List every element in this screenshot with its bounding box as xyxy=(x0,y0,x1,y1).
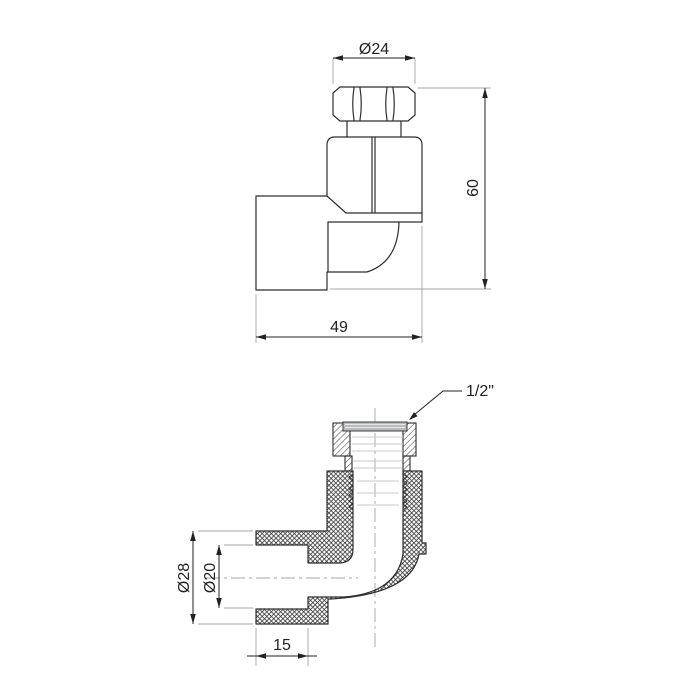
dim-id-arrow-bottom xyxy=(216,598,222,608)
thread-size-callout: 1/2" xyxy=(409,383,494,420)
dim-width-label: 49 xyxy=(330,319,348,336)
bore-thread-lines xyxy=(352,437,403,505)
dim-id-label: Ø20 xyxy=(202,563,219,593)
dim-nut-arrow-left xyxy=(333,55,343,61)
elbow-lower-outline xyxy=(328,222,399,272)
hex-nut-facet-lines xyxy=(353,88,395,120)
flange-step xyxy=(328,213,422,222)
thread-band-fill xyxy=(343,422,407,431)
thread-band xyxy=(343,422,407,431)
neck-section-left xyxy=(345,456,352,471)
dim-width-arrow-right xyxy=(412,334,422,340)
hex-nut-outline xyxy=(333,87,415,121)
technical-drawing: Ø24 60 49 xyxy=(0,0,700,700)
dim-height-arrow-top xyxy=(482,88,488,98)
dim-nut-label: Ø24 xyxy=(359,41,389,58)
thread-leader-line xyxy=(414,391,462,415)
dim-od-arrow-top xyxy=(190,531,196,541)
dim-nut-diameter: Ø24 xyxy=(333,41,415,84)
neck-section-right xyxy=(403,456,410,471)
dim-socket-inner-diameter: Ø20 xyxy=(202,545,253,608)
neck-lines xyxy=(347,121,401,137)
section-view: 1/2" Ø28 Ø20 15 xyxy=(176,383,494,666)
dim-id-arrow-top xyxy=(216,545,222,555)
drawing-canvas: Ø24 60 49 xyxy=(0,0,700,700)
dim-od-label: Ø28 xyxy=(176,563,193,593)
top-view: Ø24 60 49 xyxy=(256,41,491,343)
dim-socket-depth: 15 xyxy=(247,628,317,666)
dim-depth-arrow-right xyxy=(298,653,308,659)
thread-size-label: 1/2" xyxy=(466,383,494,400)
dim-od-arrow-bottom xyxy=(190,614,196,624)
dim-id-extension-lines xyxy=(224,545,253,608)
union-joint-lines xyxy=(372,137,375,212)
dim-nut-extension-lines xyxy=(333,58,415,84)
body-chamfer-line xyxy=(327,196,346,213)
dim-height-label: 60 xyxy=(465,179,482,197)
socket-outline xyxy=(256,196,327,290)
dim-nut-arrow-right xyxy=(405,55,415,61)
dim-overall-width: 49 xyxy=(256,226,422,343)
dim-depth-label: 15 xyxy=(273,637,291,654)
dim-height-arrow-bottom xyxy=(482,279,488,289)
dim-depth-arrow-left xyxy=(256,653,266,659)
plastic-body-inner-wall xyxy=(256,471,353,563)
dim-width-arrow-left xyxy=(256,334,266,340)
